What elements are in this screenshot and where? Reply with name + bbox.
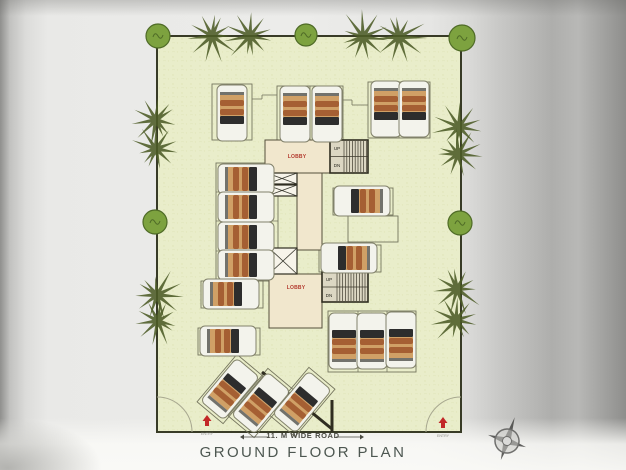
car-windshield	[338, 246, 346, 270]
car-seat	[233, 195, 239, 219]
car-windshield	[360, 330, 384, 338]
stair-direction-label: DN	[334, 163, 341, 168]
car-rear-window	[283, 93, 307, 96]
car-windshield	[315, 117, 339, 125]
car-rear-window	[225, 225, 228, 249]
car-seat	[242, 167, 248, 191]
palm-trunk	[207, 31, 217, 41]
car	[218, 164, 274, 194]
palm-trunk	[358, 32, 368, 42]
car-windshield	[249, 253, 257, 277]
car-windshield	[249, 225, 257, 249]
car-rear-window	[225, 253, 228, 277]
car-rear-window	[315, 93, 339, 96]
car-seat	[374, 96, 398, 102]
car-rear-window	[225, 195, 228, 219]
road-label: 11. M WIDE ROAD	[232, 431, 374, 440]
car-rear-window	[207, 329, 210, 353]
car-rear-window	[360, 359, 384, 362]
car-seat	[402, 105, 426, 111]
car-seat	[224, 329, 230, 353]
car-seat	[360, 348, 384, 354]
palm-trunk	[152, 145, 161, 154]
bush-icon	[449, 25, 475, 51]
car-windshield	[389, 329, 413, 337]
lobby-area	[269, 274, 322, 328]
entry-caption: ENTRY	[201, 432, 214, 436]
palm-trunk	[454, 122, 463, 131]
car-seat	[227, 282, 233, 306]
car-seat	[242, 225, 248, 249]
car-windshield	[374, 112, 398, 120]
bush-icon	[146, 24, 170, 48]
car-seat	[356, 246, 362, 270]
compass-rose-icon	[482, 411, 534, 466]
car	[218, 222, 274, 252]
car	[217, 85, 247, 141]
car-seat	[332, 348, 356, 354]
car-seat	[389, 338, 413, 344]
palm-trunk	[154, 317, 163, 326]
car-seat	[315, 101, 339, 107]
car-rear-window	[220, 92, 244, 95]
car-windshield	[402, 112, 426, 120]
bush-icon	[295, 24, 317, 46]
car	[399, 81, 429, 137]
car-seat	[218, 282, 224, 306]
lobby-area	[297, 173, 322, 250]
palm-trunk	[452, 316, 461, 325]
car-rear-window	[332, 359, 356, 362]
car-seat	[233, 253, 239, 277]
car-windshield	[220, 116, 244, 124]
car-windshield	[332, 330, 356, 338]
page-title: GROUND FLOOR PLAN	[183, 444, 423, 461]
car-rear-window	[402, 88, 426, 91]
car	[280, 86, 310, 142]
stair-direction-label: DN	[326, 293, 333, 298]
entry-caption: ENTRY	[437, 434, 450, 438]
car-windshield	[234, 282, 242, 306]
car-seat	[215, 329, 221, 353]
car-seat	[242, 195, 248, 219]
car	[321, 243, 377, 273]
stair-direction-label: UP	[326, 277, 332, 282]
car-seat	[360, 339, 384, 345]
car-seat	[233, 225, 239, 249]
car	[312, 86, 342, 142]
car-windshield	[351, 189, 359, 213]
car-rear-window	[367, 246, 370, 270]
car-seat	[233, 167, 239, 191]
car-seat	[220, 100, 244, 106]
car-rear-window	[389, 358, 413, 361]
car	[200, 326, 256, 356]
car-rear-window	[210, 282, 213, 306]
bush-icon	[448, 211, 472, 235]
car-rear-window	[380, 189, 383, 213]
car	[203, 279, 259, 309]
car	[386, 312, 416, 368]
car-windshield	[249, 195, 257, 219]
lobby-label: LOBBY	[288, 154, 307, 160]
palm-trunk	[394, 32, 404, 42]
car-seat	[332, 339, 356, 345]
car-windshield	[231, 329, 239, 353]
car-seat	[369, 189, 375, 213]
palm-trunk	[454, 150, 463, 159]
car	[329, 313, 359, 369]
car-seat	[374, 105, 398, 111]
car-seat	[389, 347, 413, 353]
car-rear-window	[374, 88, 398, 91]
car-seat	[315, 110, 339, 116]
bush-icon	[143, 210, 167, 234]
car-seat	[347, 246, 353, 270]
car	[218, 192, 274, 222]
palm-trunk	[152, 116, 161, 125]
car-windshield	[283, 117, 307, 125]
car-seat	[283, 110, 307, 116]
car-seat	[402, 96, 426, 102]
car-seat	[220, 109, 244, 115]
car	[371, 81, 401, 137]
car	[334, 186, 390, 216]
car-windshield	[249, 167, 257, 191]
car-seat	[242, 253, 248, 277]
palm-trunk	[245, 31, 254, 40]
palm-trunk	[452, 284, 461, 293]
car	[218, 250, 274, 280]
car-seat	[283, 101, 307, 107]
lobby-label: LOBBY	[287, 285, 306, 291]
floor-plan-photo: LOBBYLOBBYUPDNUPDN ENTRYENTRY 11. M WIDE…	[0, 0, 626, 470]
stair-direction-label: UP	[334, 146, 340, 151]
car-rear-window	[225, 167, 228, 191]
floor-plan-drawing: LOBBYLOBBYUPDNUPDN ENTRYENTRY	[0, 0, 626, 470]
car-seat	[360, 189, 366, 213]
palm-trunk	[152, 290, 161, 299]
car	[357, 313, 387, 369]
